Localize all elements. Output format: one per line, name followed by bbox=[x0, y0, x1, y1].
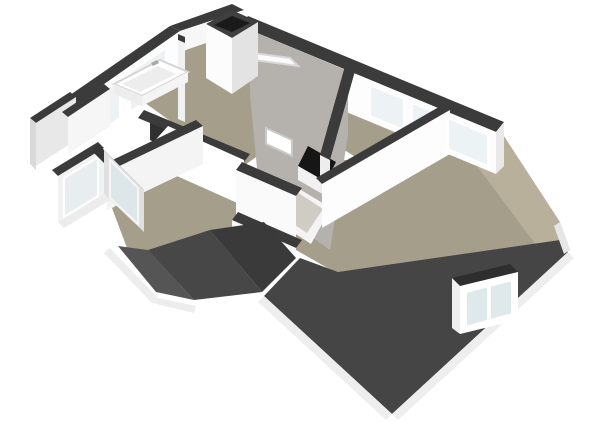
floorplan-stage bbox=[0, 0, 600, 424]
floorplan-3d-render bbox=[0, 0, 600, 424]
wall-left-outer-side bbox=[30, 118, 36, 170]
roof-main bbox=[264, 240, 568, 414]
dormer-face-left bbox=[452, 278, 460, 334]
fascia-valley-right bbox=[152, 298, 196, 313]
dormer-window-mullion bbox=[487, 285, 491, 322]
